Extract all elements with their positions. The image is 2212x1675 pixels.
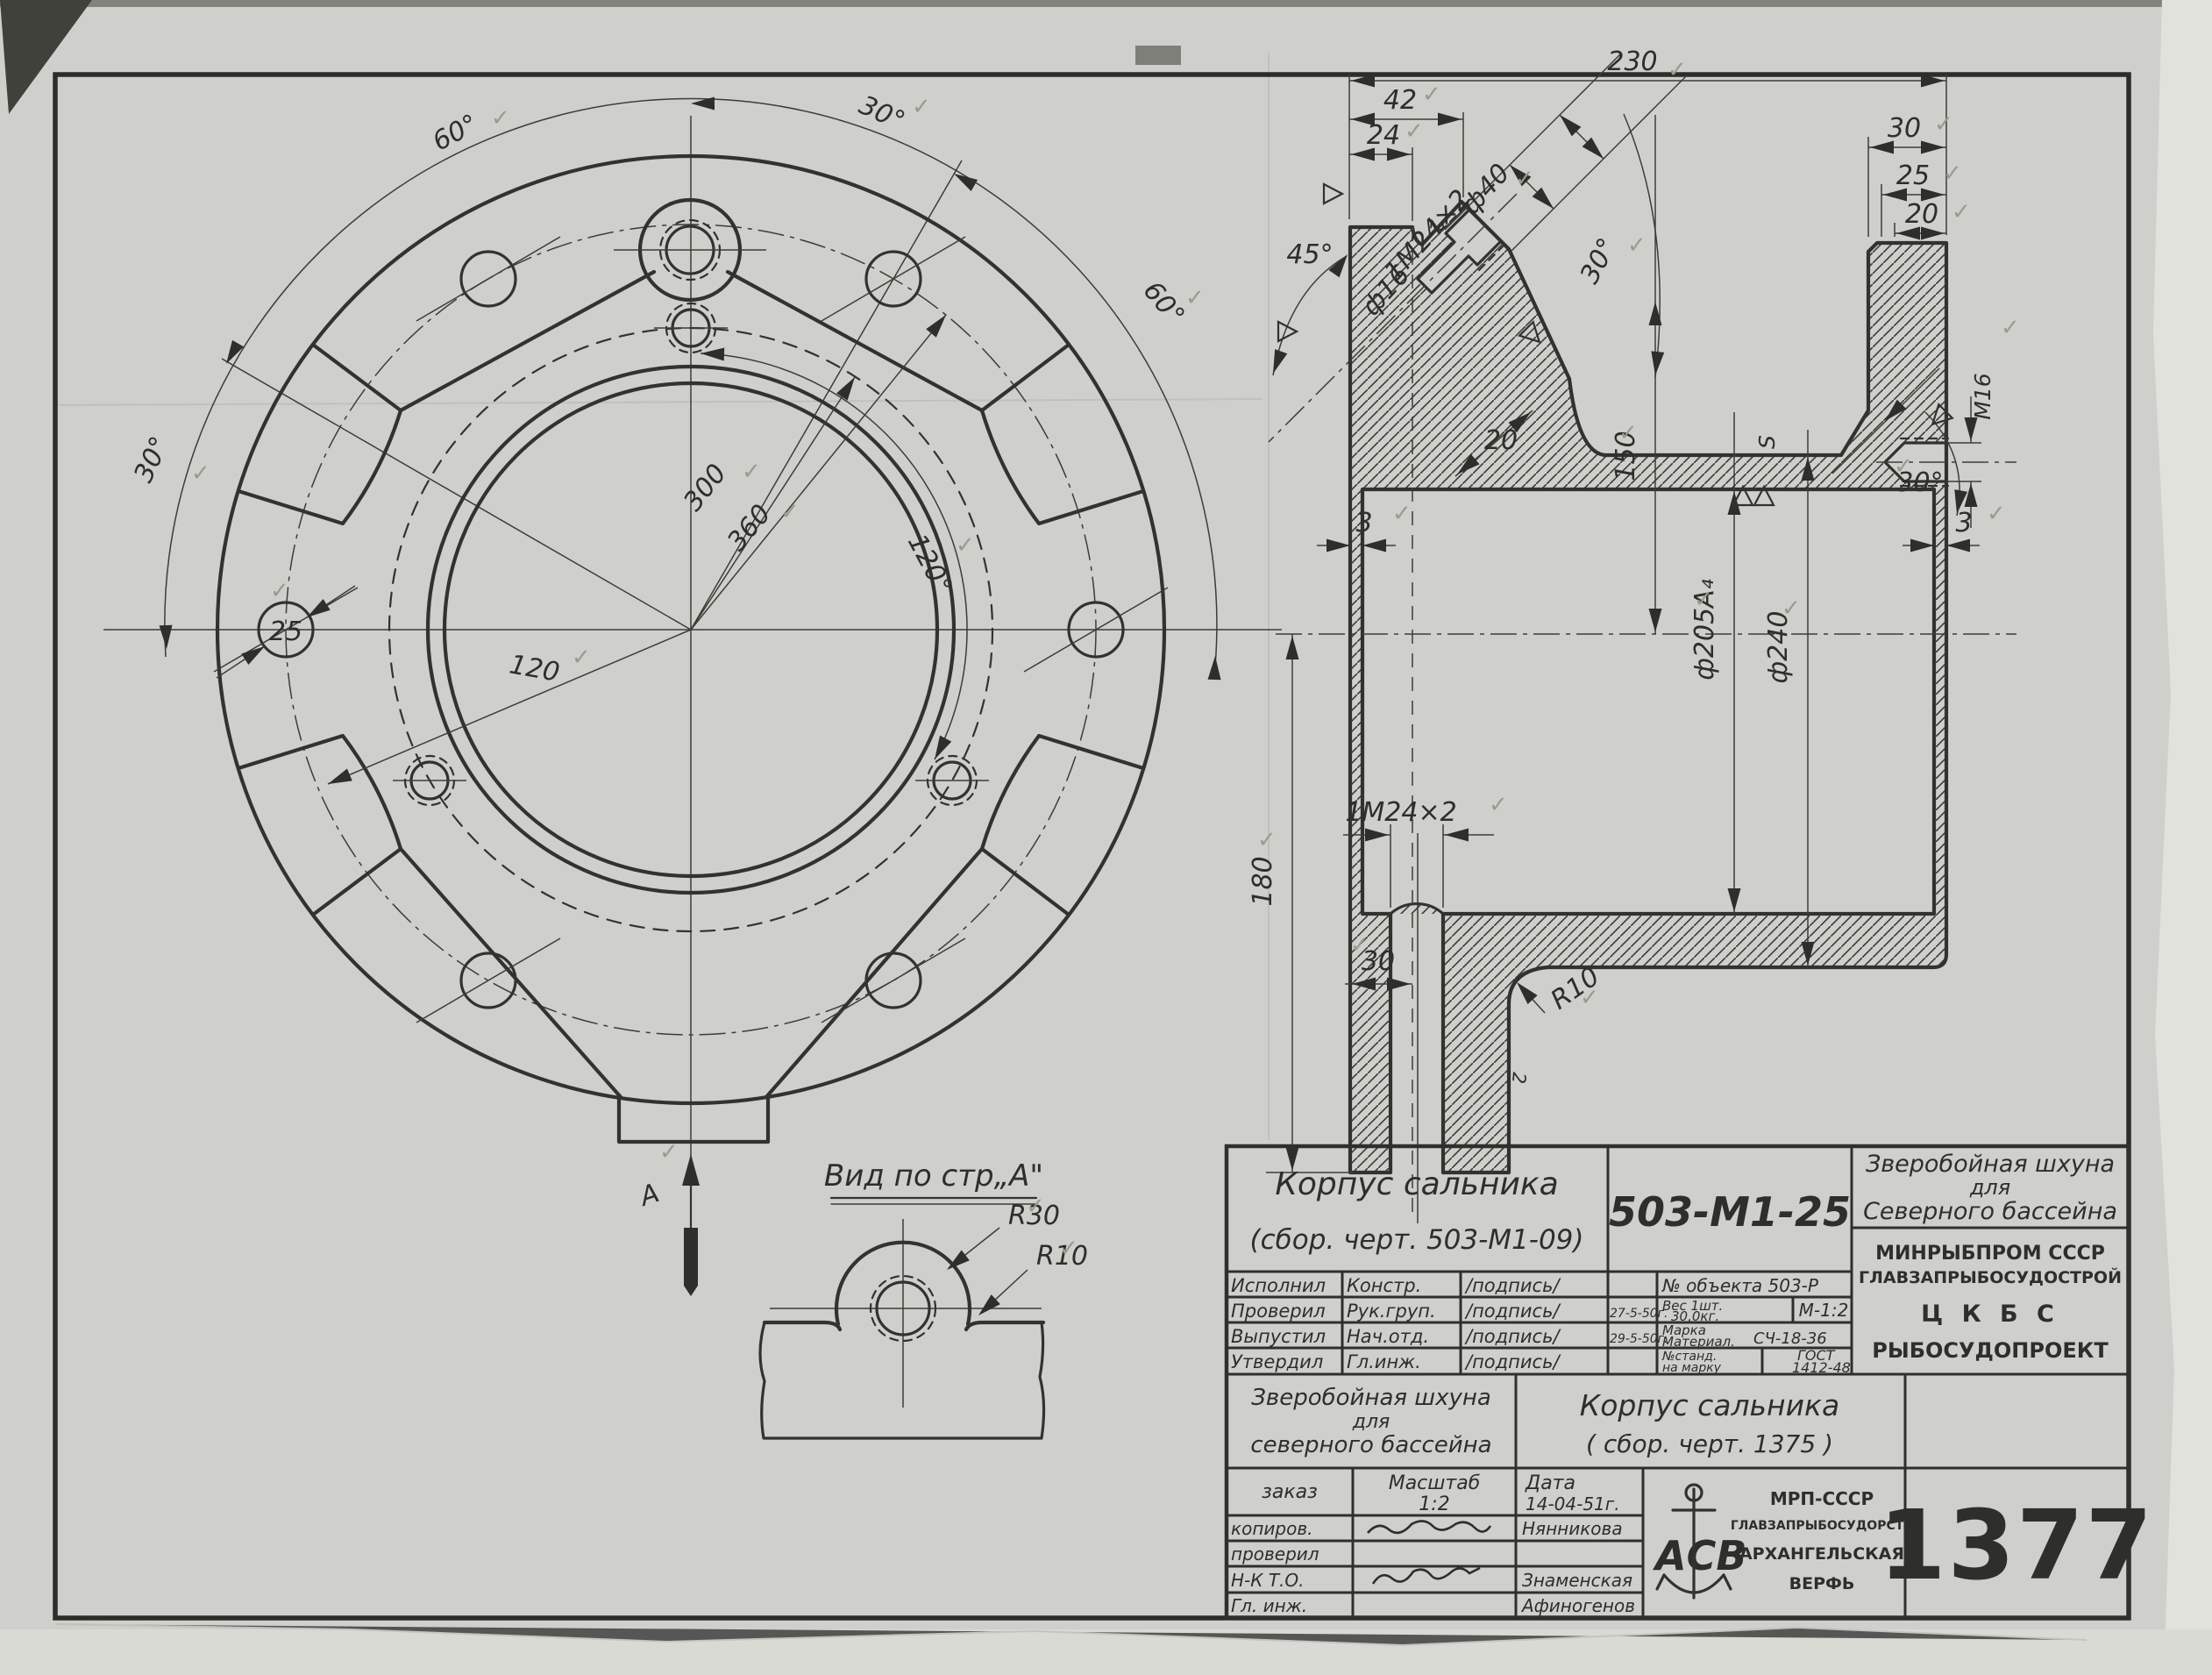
dim-m16: М16 bbox=[1970, 373, 1995, 419]
svg-text:✓: ✓ bbox=[742, 459, 761, 485]
svg-text:✓: ✓ bbox=[1894, 453, 1913, 480]
svg-text:✓: ✓ bbox=[659, 1139, 679, 1165]
svg-text:✓: ✓ bbox=[1782, 595, 1801, 622]
ship-line-3: Северного бассейна bbox=[1863, 1198, 2117, 1225]
svg-text:✓: ✓ bbox=[1987, 501, 2006, 527]
name-1: Нянникова bbox=[1522, 1518, 1623, 1539]
dim-3-right: 3 bbox=[1955, 508, 1972, 538]
date-label: Дата bbox=[1525, 1472, 1575, 1494]
lower-ship-1: Зверобойная шхуна bbox=[1251, 1385, 1491, 1411]
row-sig: /подпись/ bbox=[1464, 1301, 1561, 1322]
gost-2: 1412-48 bbox=[1792, 1359, 1851, 1376]
svg-text:✓: ✓ bbox=[572, 645, 591, 671]
doc-number: 503-М1-25 bbox=[1609, 1188, 1851, 1236]
dim-42: 42 bbox=[1383, 85, 1417, 116]
zakaz-label: заказ bbox=[1262, 1481, 1318, 1503]
shipyard-org-4: ВЕРФЬ bbox=[1789, 1574, 1855, 1593]
row-sig: /подпись/ bbox=[1464, 1275, 1561, 1296]
dim-180: 180 bbox=[1248, 856, 1278, 906]
lower-row-2: проверил bbox=[1231, 1543, 1319, 1565]
lower-row-4: Гл. инж. bbox=[1231, 1595, 1307, 1616]
stamp-number: 1377 bbox=[1879, 1489, 2154, 1601]
svg-text:✓: ✓ bbox=[1257, 827, 1277, 853]
lower-part-2: ( сбор. черт. 1375 ) bbox=[1586, 1429, 1833, 1458]
dim-25-right: 25 bbox=[1896, 160, 1930, 191]
scale-value: 1:2 bbox=[1419, 1493, 1449, 1515]
svg-text:✓: ✓ bbox=[1943, 160, 1962, 187]
org-line-4: РЫБОСУДОПРОЕКТ bbox=[1872, 1338, 2109, 1363]
row-date: 29-5-50г. bbox=[1610, 1332, 1668, 1346]
svg-text:✓: ✓ bbox=[1627, 232, 1647, 259]
org-line-2: ГЛАВЗАПРЫБОСУДОСТРОЙ bbox=[1859, 1267, 2122, 1287]
blueprint-svg: 60° 30° 60° 30° 300 360 120° 120 25 А Ви… bbox=[0, 0, 2212, 1675]
row-role: Утвердил bbox=[1231, 1351, 1323, 1372]
svg-text:✓: ✓ bbox=[780, 499, 800, 525]
paper-top-edge bbox=[0, 0, 2212, 7]
name-3: Знаменская bbox=[1522, 1570, 1632, 1591]
s-mark: S bbox=[1754, 435, 1780, 449]
svg-text:✓: ✓ bbox=[191, 460, 210, 487]
drawing-sheet: 60° 30° 60° 30° 300 360 120° 120 25 А Ви… bbox=[0, 0, 2212, 1675]
dim-thread-bottom: 1М24×2 bbox=[1345, 797, 1456, 828]
svg-text:✓: ✓ bbox=[1392, 501, 1412, 527]
row-who: Рук.груп. bbox=[1347, 1301, 1436, 1322]
dim-3-left: 3 bbox=[1355, 508, 1372, 538]
scale-label: Масштаб bbox=[1389, 1472, 1481, 1494]
row-role: Исполнил bbox=[1231, 1275, 1326, 1296]
svg-text:✓: ✓ bbox=[1026, 1194, 1045, 1220]
mat-value: СЧ-18-36 bbox=[1753, 1329, 1827, 1348]
svg-text:✓: ✓ bbox=[1618, 420, 1638, 446]
dim-30-right: 30 bbox=[1888, 113, 1921, 144]
object-no: № объекта 503-Р bbox=[1661, 1275, 1819, 1296]
svg-text:✓: ✓ bbox=[1934, 111, 1953, 138]
dim-20-slope: 20 bbox=[1484, 425, 1518, 456]
paper-tear-top bbox=[1135, 46, 1181, 65]
row-who: Гл.инж. bbox=[1347, 1351, 1421, 1372]
svg-text:✓: ✓ bbox=[1422, 82, 1441, 108]
svg-text:✓: ✓ bbox=[1185, 285, 1205, 311]
svg-text:✓: ✓ bbox=[2001, 315, 2020, 341]
svg-text:✓: ✓ bbox=[1405, 118, 1424, 145]
logo-letters: АСВ bbox=[1653, 1532, 1746, 1579]
lower-ship-3: северного бассейна bbox=[1250, 1432, 1491, 1458]
row-role: Выпустил bbox=[1231, 1326, 1326, 1347]
dim-230: 230 bbox=[1607, 46, 1657, 77]
mat-label-2: Материал. bbox=[1662, 1334, 1735, 1350]
svg-text:✓: ✓ bbox=[956, 532, 975, 559]
date-value: 14-04-51г. bbox=[1526, 1493, 1620, 1515]
org-line-3: Ц К Б С bbox=[1921, 1301, 2059, 1328]
detail-view-title: Вид по стр„А" bbox=[824, 1158, 1043, 1194]
lower-part-1: Корпус сальника bbox=[1580, 1388, 1839, 1422]
dim-r2-bottom: 2 bbox=[1508, 1072, 1530, 1085]
dim-25-hole: 25 bbox=[269, 617, 302, 647]
dim-24: 24 bbox=[1367, 120, 1400, 151]
svg-text:✓: ✓ bbox=[912, 94, 931, 120]
shipyard-org-1: МРП-СССР bbox=[1770, 1488, 1874, 1509]
org-line-1: МИНРЫБПРОМ СССР bbox=[1875, 1243, 2105, 1265]
part-subtitle: (сбор. черт. 503-М1-09) bbox=[1250, 1224, 1584, 1256]
svg-text:✓: ✓ bbox=[1350, 932, 1369, 959]
row-date: 27-5-50г. bbox=[1610, 1307, 1668, 1321]
svg-text:✓: ✓ bbox=[270, 578, 289, 604]
angle-45: 45° bbox=[1286, 239, 1333, 270]
part-title: Корпус сальника bbox=[1275, 1166, 1558, 1202]
lower-ship-2: для bbox=[1352, 1411, 1391, 1433]
svg-text:✓: ✓ bbox=[1580, 985, 1599, 1011]
svg-text:✓: ✓ bbox=[1668, 57, 1687, 83]
row-sig: /подпись/ bbox=[1464, 1326, 1561, 1347]
row-who: Констр. bbox=[1347, 1275, 1421, 1296]
svg-text:✓: ✓ bbox=[1489, 792, 1508, 818]
dim-20-right: 20 bbox=[1905, 199, 1938, 230]
ship-line-2: для bbox=[1969, 1175, 2010, 1200]
row-sig: /подпись/ bbox=[1464, 1351, 1561, 1372]
svg-text:✓: ✓ bbox=[1952, 199, 1971, 225]
row-who: Нач.отд. bbox=[1347, 1326, 1429, 1347]
svg-text:✓: ✓ bbox=[1059, 1236, 1078, 1262]
svg-text:✓: ✓ bbox=[1694, 587, 1713, 613]
lower-row-3: Н-К Т.О. bbox=[1231, 1570, 1305, 1591]
svg-text:✓: ✓ bbox=[1515, 166, 1534, 192]
lower-row-1: копиров. bbox=[1231, 1518, 1312, 1539]
ship-line-1: Зверобойная шхуна bbox=[1866, 1151, 2115, 1178]
name-4: Афиногенов bbox=[1520, 1595, 1635, 1616]
std-label-2: на марку bbox=[1662, 1361, 1722, 1375]
svg-text:✓: ✓ bbox=[491, 105, 510, 132]
row-role: Проверил bbox=[1231, 1301, 1326, 1322]
scale-code: М-1:2 bbox=[1799, 1300, 1849, 1321]
